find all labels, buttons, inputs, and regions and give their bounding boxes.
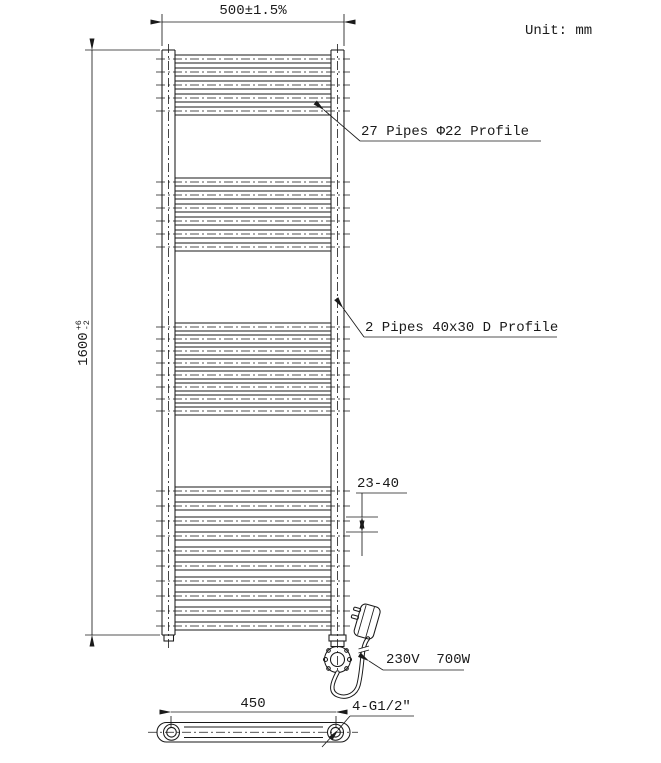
- d-pipes-label: 2 Pipes 40x30 D Profile: [365, 320, 558, 336]
- height-tolerance-minus: -2: [83, 320, 91, 330]
- thread-label: 4-G1/2″: [352, 699, 411, 715]
- bottom-view: [148, 723, 358, 743]
- power-label: 230V 700W: [386, 652, 470, 668]
- height-value: 1600: [76, 332, 92, 366]
- round-pipes-label: 27 Pipes Φ22 Profile: [361, 124, 529, 140]
- bottom-width-dimension: [171, 712, 336, 727]
- power-plug-icon: [347, 601, 382, 640]
- drawing-linework: [0, 0, 661, 763]
- height-dimension: [85, 50, 160, 635]
- radiator-body: [156, 44, 350, 676]
- pipe-rows: [156, 55, 350, 630]
- pipe-gap-dimension: [346, 493, 407, 556]
- width-dimension-label: 500±1.5%: [196, 3, 310, 19]
- pipe-gap-label: 23-40: [357, 476, 399, 492]
- heating-element: [324, 635, 352, 673]
- unit-label: Unit: mm: [525, 23, 592, 39]
- technical-drawing: 500±1.5% Unit: mm 1600+6-2 27 Pipes Φ22 …: [0, 0, 661, 763]
- height-dimension-label: 1600+6-2: [73, 293, 95, 393]
- bottom-width-label: 450: [223, 696, 283, 712]
